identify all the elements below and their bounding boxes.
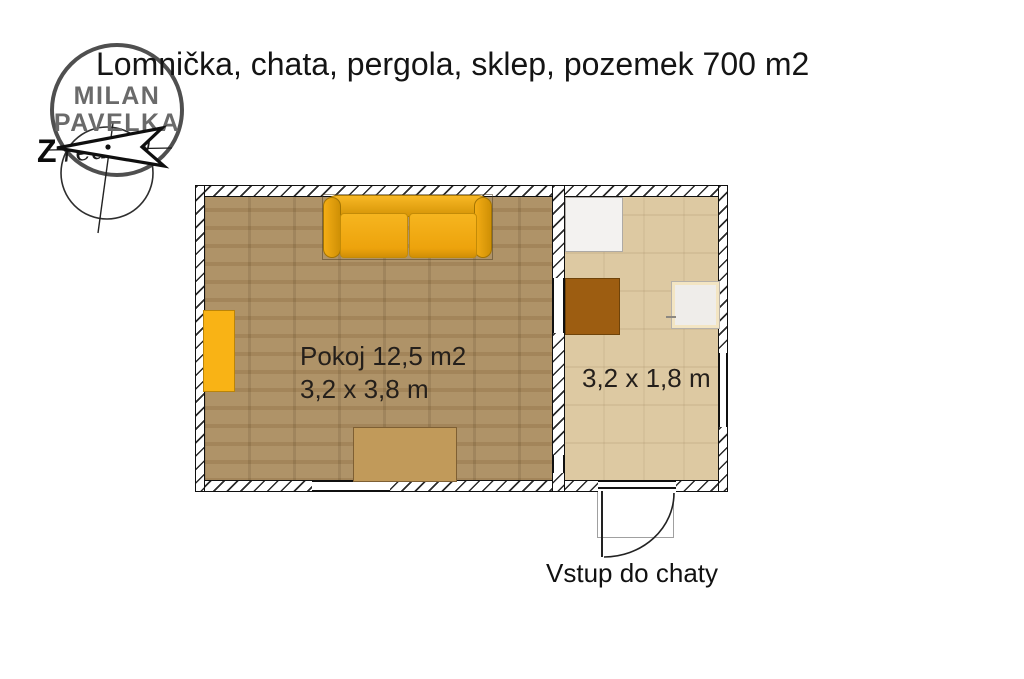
room2-size: 3,2 x 1,8 m bbox=[582, 363, 711, 394]
room1-label: Pokoj 12,5 m2 3,2 x 3,8 m bbox=[300, 340, 466, 406]
room1-size: 3,2 x 3,8 m bbox=[300, 373, 466, 406]
wall-right bbox=[718, 185, 728, 492]
door-swing-arc-icon bbox=[602, 491, 678, 561]
sideboard-orange bbox=[203, 310, 235, 392]
brand-name-line1: MILAN bbox=[74, 82, 161, 110]
compass-letter-west: Z bbox=[37, 133, 57, 169]
cabinet-brown bbox=[565, 278, 620, 335]
sofa-cushion-left bbox=[340, 213, 408, 258]
sofa bbox=[322, 194, 493, 260]
floor-plan-page: MILAN PAVELKA reality Z Lomnička, chata,… bbox=[0, 0, 1024, 679]
wall-divider bbox=[552, 185, 565, 492]
divider-wall-opening-upper bbox=[552, 278, 565, 333]
room1-name: Pokoj 12,5 m2 bbox=[300, 340, 466, 373]
page-title: Lomnička, chata, pergola, sklep, pozemek… bbox=[96, 46, 809, 82]
cabinet-right-wall bbox=[672, 282, 719, 328]
table bbox=[353, 427, 457, 482]
fridge-white bbox=[565, 197, 623, 252]
sofa-cushion-right bbox=[409, 213, 477, 258]
window-right-wall bbox=[718, 353, 728, 427]
sofa-armrest-left bbox=[323, 197, 341, 258]
door-threshold-line bbox=[598, 487, 676, 489]
compass-center-dot-icon bbox=[105, 144, 110, 149]
cabinet-tick-mark bbox=[666, 316, 676, 318]
divider-wall-opening-lower bbox=[552, 455, 565, 473]
entrance-label: Vstup do chaty bbox=[546, 558, 718, 589]
